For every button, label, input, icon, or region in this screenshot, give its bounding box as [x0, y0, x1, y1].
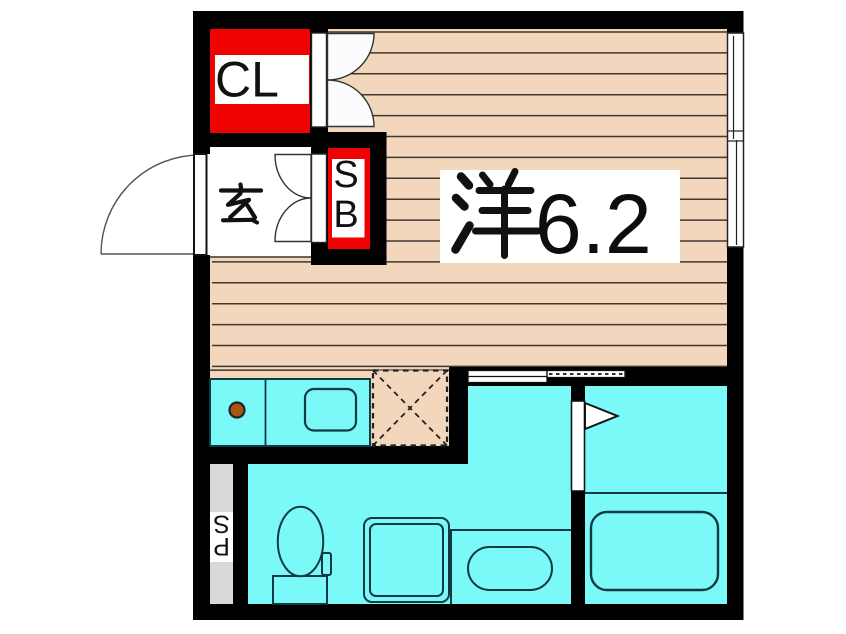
svg-text:S: S	[213, 510, 230, 538]
svg-text:S: S	[333, 154, 358, 196]
svg-text:B: B	[333, 194, 358, 236]
svg-text:CL: CL	[215, 52, 279, 108]
svg-text:6.2: 6.2	[535, 177, 652, 271]
